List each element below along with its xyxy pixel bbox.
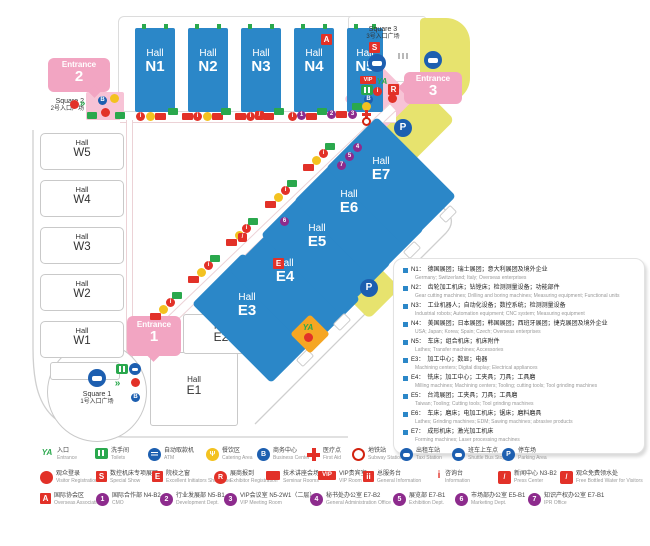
office-6-icon: 6 [455,493,468,506]
square-3-label: Square 3 3号入口广场 [352,26,414,41]
information-icon: i [373,87,382,96]
catering-icon [203,112,212,121]
overseas-associations-icon: A [40,493,51,504]
venue-map: Hall N1 Hall N2 Hall N3 Hall N4 Hall N5 … [0,0,650,546]
information-icon: i [204,261,213,270]
facility-office-5: 5 展览部 E7-B1Exhibition Dept. [393,493,445,506]
blue-square-icon [403,322,408,327]
business-center-icon: B [257,448,270,461]
information-icon: i [288,112,297,121]
special-show-badge: S [369,42,380,53]
seminar-rooms-icon [306,113,317,120]
catering-icon: Ψ [206,448,219,461]
facility-office-2: 2 行业发展部 N5-B1Development Dept. [160,493,225,506]
blue-square-icon [403,394,408,399]
information-icon: i [193,112,202,121]
facility-shuttle-bus: 班车上车点Shuttle Bus Stop [452,448,505,461]
hall-n1: Hall N1 [135,28,175,112]
hall-e1: Hall E1 [150,352,238,426]
blue-square-icon [403,304,408,309]
blue-square-icon [403,286,408,291]
shuttle-bus-icon [452,448,465,461]
office-5-icon: 5 [393,493,406,506]
entrance-1-bubble: Entrance 1 [127,316,181,356]
office-3-icon: 3 [224,493,237,506]
shuttle-bus-icon [129,363,141,375]
toilets-icon [87,112,97,119]
toilets-icon [172,292,182,299]
information-icon: i [242,224,251,233]
toilets-icon [210,255,220,262]
visitor-registration-icon [40,471,53,484]
facility-legend-row2: 观众登录Visitor Registration S 数控机床专项展区Speci… [0,471,650,491]
visitor-registration-icon [131,378,140,387]
toilets-icon [95,448,108,459]
office-4-icon: 4 [310,493,323,506]
subway-icon [352,448,365,461]
facility-office-7: 7 知识产权办公室 E7-B1IPR Office [528,493,604,506]
facility-office-3: 3 VIP会议室 N5-2W1（二层）VIP Meeting Room [224,493,315,506]
hall-w1: Hall W1 [40,321,124,358]
overseas-associations-badge: A [321,34,332,45]
office-6-icon: 6 [280,217,289,226]
gate-icon [398,53,410,59]
blue-square-icon [403,376,408,381]
blue-square-icon [403,412,408,417]
seminar-rooms-icon [235,113,246,120]
shuttle-bus-icon [88,369,106,387]
facility-office-6: 6 市场部办公室 E5-B1Marketing Dept. [455,493,525,506]
visitor-registration-icon [388,94,397,103]
catering-icon [312,156,321,165]
facility-first-aid: 医疗点First Aid [307,448,341,461]
legend-entry-n5: N5：车床；组合机床；机床附件 Lathes; Transfer machine… [403,339,635,353]
entrance-3-bubble: Entrance 3 [404,72,462,104]
toilets-icon [115,112,125,119]
toilets-icon [361,85,373,95]
small-building-w1 [50,362,120,380]
escalator-arrows-icon: » [76,100,88,109]
legend-entry-e7: E7：成形机床；激光加工机床 Forming machines; Laser p… [403,429,635,443]
business-center-icon: B [131,393,140,402]
hall-e4-label: HallE4 [260,259,310,285]
office-1-icon: 1 [96,493,109,506]
legend-entry-e5: E5：台湾展团；工夹具；刀具；工具磨 Taiwan; Tooling; Cutt… [403,393,635,407]
general-information-icon: ii [363,471,374,482]
facility-entrance: YA 入口Entrance [40,448,77,461]
office-3-icon: 3 [348,110,357,119]
catering-icon [146,112,155,121]
facility-office-1: 1 国际合作部 N4-B2CMO [96,493,161,506]
blue-square-icon [403,340,408,345]
information-desk-icon: i [436,471,442,480]
catering-icon [159,305,168,314]
hall-w3: Hall W3 [40,227,124,264]
catering-icon [274,193,283,202]
facility-atm: 自动取款机ATM [148,448,194,461]
parking-icon: P [360,279,378,297]
seminar-rooms-icon [150,313,161,320]
blue-square-icon [403,358,408,363]
legend-entry-n3: N3：工业机器人；自动化设备；数控系统；检测测量设备 Industrial ro… [403,303,635,317]
parking-icon: P [394,119,412,137]
information-icon: i [281,186,290,195]
press-center-icon: / [498,471,511,484]
visitor-registration-icon [101,108,110,117]
legend-entry-n4: N4：美国展团；日本展团；韩国展团；西班牙展团；捷克展团及境外企业 USA; J… [403,321,635,335]
office-7-icon: 7 [528,493,541,506]
shuttle-bus-icon [368,54,386,72]
free-water-icon: / [560,471,573,484]
seminar-rooms-icon [266,471,280,480]
subway-icon [362,117,371,126]
seminar-rooms-icon [336,111,347,118]
facility-business-center: B 商务中心Business Center [257,448,310,461]
legend-entry-e4: E4：铣床；加工中心；工夹具；刀具；工具磨 Milling machines; … [403,375,635,389]
office-1-icon: 1 [297,111,306,120]
hall-e7-label: HallE7 [356,157,406,183]
hall-e5-label: HallE5 [292,224,342,250]
information-icon: i [319,149,328,158]
showcase-icon: E [152,471,163,482]
office-2-icon: 2 [160,493,173,506]
toilets-icon [352,103,362,110]
parking-icon: P [502,448,515,461]
blue-square-icon [403,430,408,435]
shuttle-bus-icon [424,51,442,69]
facility-legend-row1: YA 入口Entrance 洗手间Toilets 自动取款机ATM Ψ 餐饮区C… [0,448,650,468]
seminar-rooms-icon [188,276,199,283]
facility-information: i 咨询台Information [436,471,470,484]
facility-legend-row3: A 国际协会区Overseas Associations 1 国际合作部 N4-… [0,493,650,513]
seminar-rooms-icon [226,239,237,246]
atm-icon [148,448,161,461]
vip-room-icon: VIP [318,471,336,480]
legend-entry-e3: E3：加工中心；数显；电器 Machining centers; Digital… [403,357,635,371]
entrance-ya-icon: YA [300,323,316,332]
blue-square-icon [403,268,408,273]
facility-vip-room: VIP VIP贵宾室VIP Room [318,471,367,484]
toilets-icon [116,364,128,374]
hall-e6-label: HallE6 [324,190,374,216]
toilets-icon [317,108,327,115]
facility-free-water: / 观众免费领水处Free Bottled Water for Visitors [560,471,643,484]
facility-toilets: 洗手间Toilets [95,448,129,461]
legend-entry-n1: N1：德国展团；瑞士展团；意大利展团及境外企业 Germany; Switzer… [403,267,635,281]
toilets-icon [168,108,178,115]
facility-parking: P 停车场Parking Area [502,448,547,461]
hall-legend-box: N1：德国展团；瑞士展团；意大利展团及境外企业 Germany; Switzer… [393,258,645,454]
office-4-icon: 4 [353,143,362,152]
free-water-icon: / [238,233,247,242]
business-center-icon: B [98,96,107,105]
hall-w2: Hall W2 [40,274,124,311]
facility-general-information: ii 总服务台General Information [363,471,421,484]
facility-seminar-rooms: 技术讲座会场Seminar Rooms [266,471,319,484]
facility-visitor-registration: 观众登录Visitor Registration [40,471,98,484]
toilets-icon [221,108,231,115]
hall-w4: Hall W4 [40,180,124,217]
facility-office-4: 4 秘书处办公室 E7-B2General Administration Off… [310,493,391,506]
legend-entry-n2: N2：齿轮加工机床；钻镗床；检测测量设备；功能部件 Gear cutting m… [403,285,635,299]
catering-icon [110,94,119,103]
facility-catering: Ψ 餐饮区Catering Area [206,448,253,461]
square-1-label: Square 1 1号入口广场 [57,391,137,406]
toilets-icon [287,180,297,187]
office-7-icon: 7 [337,161,346,170]
seminar-rooms-icon [263,113,274,120]
hall-n3: Hall N3 [241,28,281,112]
facility-press-center: / 新闻中心 N3-B2Press Center [498,471,557,484]
facility-taxi: 出租车站Taxi Station [400,448,442,461]
hall-n2: Hall N2 [188,28,228,112]
seminar-rooms-icon [182,113,193,120]
visitor-registration-icon [304,333,313,342]
first-aid-icon [307,448,320,461]
information-icon: i [136,112,145,121]
seminar-rooms-icon [303,164,314,171]
facility-special-show: S 数控机床专项展区Special Show [96,471,158,484]
facility-subway: 地铁站Subway Station [352,448,403,461]
toilets-icon [325,143,335,150]
seminar-rooms-icon [155,113,166,120]
showcase-badge: E [273,258,284,269]
hall-e3-label: HallE3 [222,293,272,319]
facility-overseas-associations: A 国际协会区Overseas Associations [40,493,105,506]
toilets-icon [274,108,284,115]
toilets-icon [248,218,258,225]
seminar-rooms-icon [265,201,276,208]
catering-icon [197,268,206,277]
taxi-icon [400,448,413,461]
entrance-ya-icon: YA [40,448,54,457]
special-show-icon: S [96,471,107,482]
office-2-icon: 2 [327,110,336,119]
exhibitor-registration-icon: R [214,471,227,484]
information-icon: i [166,298,175,307]
entrance-2-bubble: Entrance 2 [48,58,110,92]
office-5-icon: 5 [345,152,354,161]
escalator-arrows-icon: » [111,380,123,389]
legend-entry-e6: E6：车床；磨床；电加工机床；锯床；磨料磨具 Lathes; Grinding … [403,411,635,425]
hall-w5: Hall W5 [40,133,124,170]
information-icon: i [246,112,255,121]
